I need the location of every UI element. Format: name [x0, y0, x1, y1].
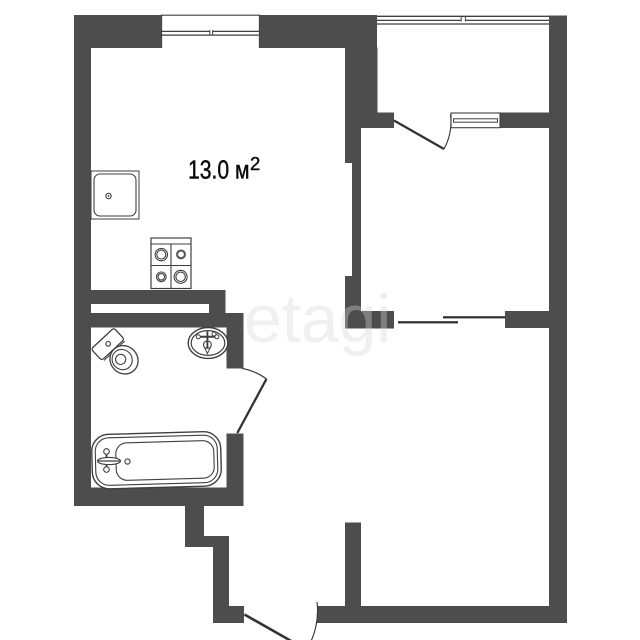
svg-text:13.0 м: 13.0 м	[188, 155, 250, 185]
svg-text:2: 2	[250, 153, 260, 174]
svg-text:etagi: etagi	[244, 281, 391, 357]
